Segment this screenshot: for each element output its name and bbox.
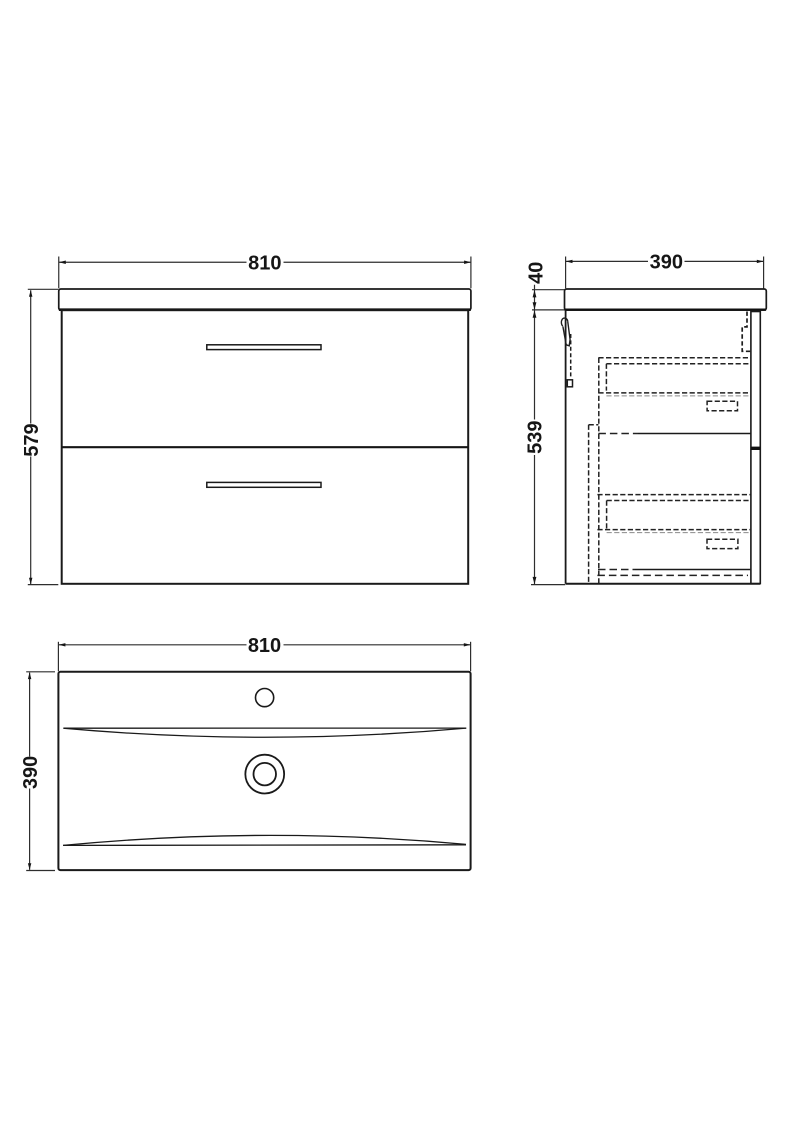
svg-text:390: 390	[650, 252, 683, 274]
svg-text:40: 40	[525, 262, 547, 284]
svg-text:390: 390	[20, 756, 42, 789]
svg-text:810: 810	[248, 252, 281, 274]
svg-text:579: 579	[21, 423, 43, 456]
svg-text:810: 810	[248, 635, 281, 657]
svg-text:539: 539	[525, 421, 547, 454]
